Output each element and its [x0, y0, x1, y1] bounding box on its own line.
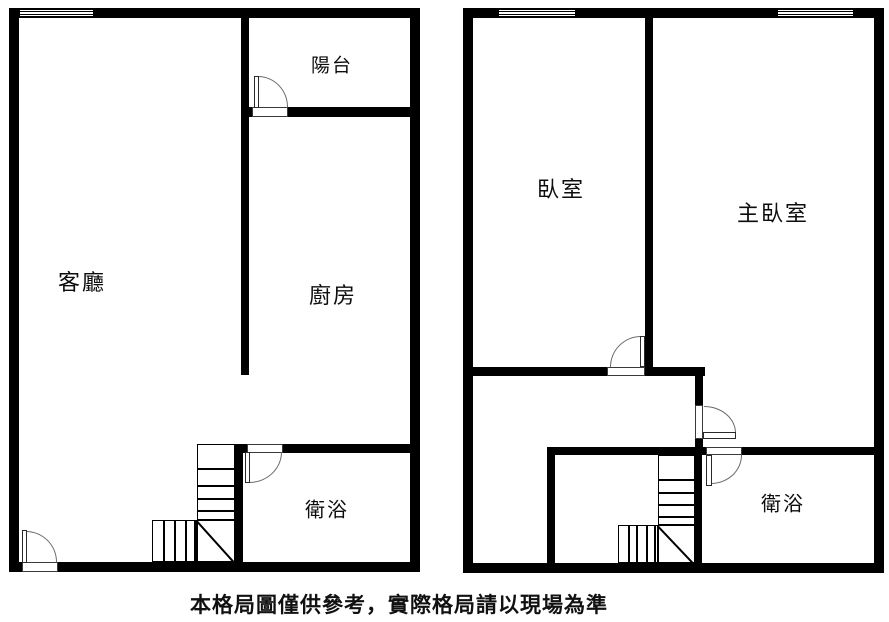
stair-tread — [198, 498, 234, 500]
bedroom-bottom-wall-a — [473, 367, 607, 376]
master-bedroom-window — [778, 8, 853, 18]
stair-tread — [194, 521, 196, 561]
window-pane-line — [778, 11, 853, 12]
stair-tread — [185, 521, 187, 561]
room-label-right-bathroom: 衛浴 — [761, 488, 805, 517]
stair-tread — [654, 526, 656, 562]
left-plan-stair-wall — [235, 444, 243, 562]
stair-tread — [659, 504, 694, 506]
bedroom-window — [499, 8, 575, 18]
right-stair-wall-left — [547, 447, 555, 563]
stair-tread — [659, 492, 694, 494]
left-plan-wall-bottom-a — [9, 562, 22, 572]
left-stairs-horizontal-flight — [152, 520, 197, 562]
window-pane-line — [499, 14, 575, 15]
stair-tread — [628, 526, 630, 562]
balcony-door-leaf — [254, 76, 259, 108]
window-pane-line — [20, 11, 93, 12]
left-plan-wall-bottom-b — [58, 562, 420, 572]
stair-tread — [659, 479, 694, 481]
entrance-door-swing-arc — [26, 531, 57, 562]
bedroom-door-threshold — [607, 367, 645, 376]
window-pane-line — [778, 14, 853, 15]
entrance-door-threshold — [22, 562, 58, 572]
room-label-living-room: 客廳 — [58, 265, 106, 297]
right-stairs-horizontal-flight — [618, 525, 658, 563]
right-bathroom-door-leaf — [706, 455, 712, 486]
master-bedroom-door-threshold — [695, 405, 703, 439]
right-bathroom-door-swing-arc — [711, 455, 742, 484]
disclaimer-caption: 本格局圖僅供參考，實際格局請以現場為準 — [190, 589, 608, 619]
bedroom-door-swing-arc — [610, 336, 641, 367]
left-plan-bathroom-wall-b — [283, 444, 410, 453]
floor-plan-canvas: 陽台 客廳 廚房 衛浴 — [0, 0, 889, 622]
stair-tread — [636, 526, 638, 562]
right-bathroom-wall-a — [547, 447, 706, 455]
balcony-door-threshold — [252, 107, 288, 117]
left-plan-wall-right — [410, 8, 420, 572]
stair-tread — [163, 521, 165, 561]
master-bedroom-door-leaf — [703, 432, 736, 439]
right-plan-wall-right — [874, 8, 884, 573]
left-plan-window — [20, 8, 93, 18]
stair-tread — [198, 468, 234, 470]
stair-tread — [174, 521, 176, 561]
stair-tread — [198, 485, 234, 487]
left-plan-divider-wall — [241, 18, 249, 375]
stair-tread — [659, 516, 694, 518]
left-bathroom-door-leaf — [245, 452, 250, 483]
room-label-balcony: 陽台 — [311, 51, 353, 78]
right-plan-divider-wall — [645, 18, 653, 375]
balcony-door-swing-arc — [258, 76, 288, 107]
master-bedroom-side-wall-a — [695, 375, 703, 405]
right-plan-wall-left — [463, 8, 473, 573]
right-bathroom-door-threshold — [706, 447, 742, 455]
left-plan-balcony-wall — [288, 107, 410, 117]
window-pane-line — [20, 14, 93, 15]
window-pane-line — [499, 11, 575, 12]
bedroom-door-leaf — [640, 336, 645, 367]
left-plan-wall-left — [9, 8, 19, 572]
stair-tread — [646, 526, 648, 562]
left-bathroom-door-swing-arc — [249, 452, 282, 483]
master-bedroom-door-swing-arc — [704, 406, 736, 433]
right-stairs-vertical-flight — [658, 455, 695, 525]
room-label-kitchen: 廚房 — [309, 278, 357, 310]
right-plan-wall-bottom — [463, 563, 884, 573]
room-label-left-bathroom: 衛浴 — [305, 494, 349, 523]
right-stair-wall-right — [695, 455, 702, 563]
room-label-bedroom: 臥室 — [537, 172, 585, 204]
room-label-master-bedroom: 主臥室 — [737, 196, 809, 228]
left-stairs-vertical-flight — [197, 444, 235, 520]
right-bathroom-wall-b — [742, 447, 874, 455]
stair-tread — [198, 510, 234, 512]
entrance-door-leaf — [22, 530, 27, 563]
